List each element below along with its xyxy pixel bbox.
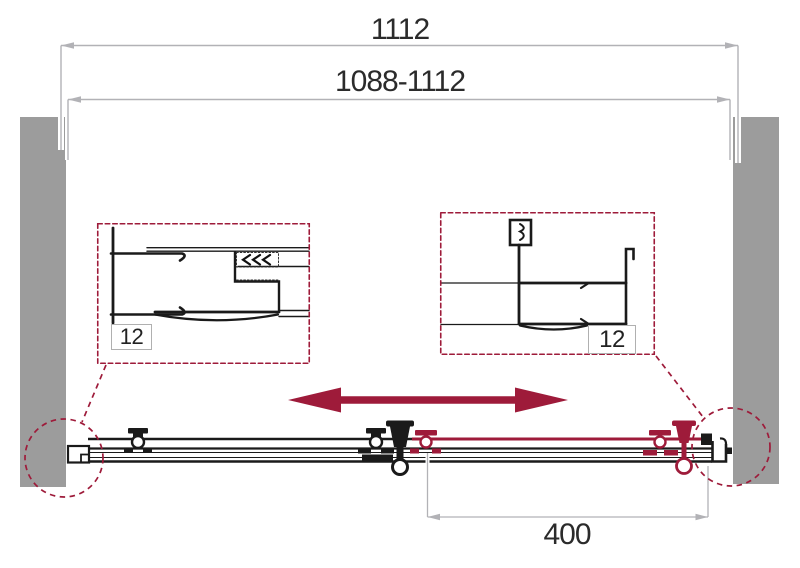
left-leader-line [82, 365, 106, 422]
chevron-icon [263, 255, 270, 265]
left-profile-label: 12 [111, 324, 152, 350]
carriage-foot [432, 449, 441, 454]
carriage-foot [124, 449, 133, 454]
total-width-value: 1112 [300, 15, 500, 45]
wall-profile-section [111, 228, 185, 323]
carriage-foot [381, 449, 394, 454]
dimension-adjustable-range [68, 96, 730, 160]
glass-line [279, 311, 309, 317]
roller-carriage-fixed-center [358, 428, 394, 461]
arrowhead-right-icon [696, 514, 709, 520]
carriage-foot [643, 450, 657, 456]
knob-cap [386, 421, 414, 427]
j-profile [713, 441, 727, 462]
door-profile-section [147, 248, 309, 321]
carriage-plate [649, 430, 671, 436]
right-profile-label: 12 [588, 325, 636, 354]
chevron-icon [253, 255, 260, 265]
right-wall [733, 117, 779, 484]
track-assembly [68, 421, 732, 475]
right-leader-line [656, 356, 703, 417]
carriage-base [362, 455, 393, 461]
technical-drawing-canvas: 1112 1088-1112 400 12 12 [0, 0, 800, 568]
roller-wheel-icon [421, 437, 432, 448]
slide-direction-arrow-icon [288, 388, 568, 413]
seal-arc [520, 326, 587, 330]
roller-carriage-sliding-right [643, 430, 678, 456]
chevron-icon [243, 255, 250, 265]
carriage-plate [415, 430, 437, 436]
dimension-total-width [61, 42, 738, 163]
profile-step [235, 252, 279, 311]
carriage-plate [366, 428, 386, 434]
profile-end [626, 249, 634, 324]
knob-stem [682, 443, 687, 459]
j-profile-hook [720, 438, 726, 444]
left-wall [20, 117, 66, 487]
left-wall-bracket [68, 446, 89, 463]
roller-wheel-icon [370, 436, 382, 448]
profile-tab [726, 448, 732, 455]
knob-ring-icon [677, 459, 692, 474]
door-profile-section [441, 220, 634, 330]
end-cap [701, 434, 712, 446]
knob-body [390, 427, 410, 448]
door-panel-width-value: 400 [467, 520, 667, 550]
carriage-plate [128, 428, 148, 434]
roller-wheel-icon [132, 436, 144, 448]
roller-carriage-sliding-left [410, 430, 441, 454]
dimension-door-width [428, 453, 709, 520]
profile-line [111, 254, 185, 261]
carriage-foot [410, 449, 419, 454]
knob-ring-icon [393, 460, 408, 475]
bracket-notch [520, 224, 524, 240]
knob-cap [672, 421, 696, 427]
carriage-foot [664, 450, 678, 456]
carriage-foot [358, 449, 371, 454]
roller-wheel-icon [655, 437, 666, 448]
carriage-foot [143, 449, 152, 454]
adjustable-range-value: 1088-1112 [288, 67, 512, 97]
